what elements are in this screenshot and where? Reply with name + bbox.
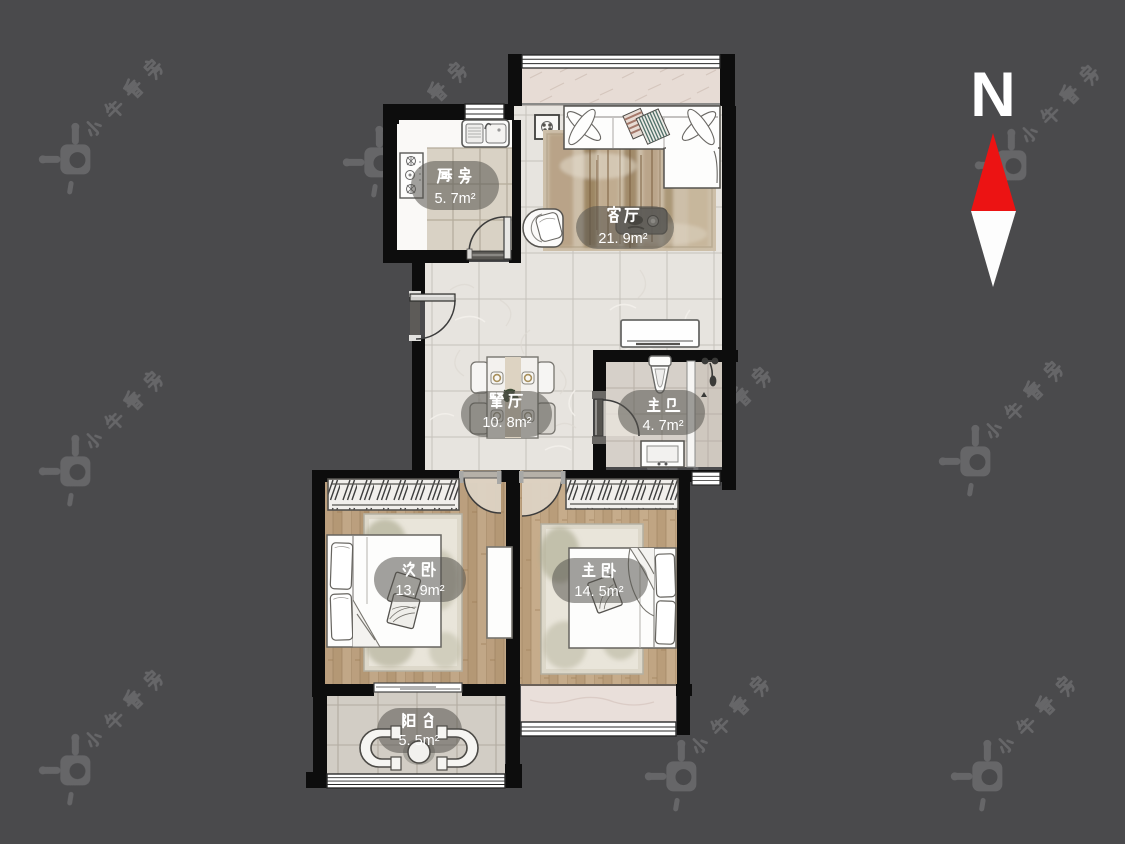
svg-text:N: N — [970, 60, 1016, 130]
svg-text:13. 9m²: 13. 9m² — [395, 583, 444, 599]
svg-text:10. 8m²: 10. 8m² — [482, 415, 531, 431]
svg-text:14. 5m²: 14. 5m² — [574, 584, 623, 600]
svg-text:21. 9m²: 21. 9m² — [598, 231, 647, 247]
svg-text:5. 7m²: 5. 7m² — [434, 191, 475, 207]
svg-text:4. 7m²: 4. 7m² — [642, 418, 683, 434]
svg-text:5. 5m²: 5. 5m² — [398, 733, 439, 749]
